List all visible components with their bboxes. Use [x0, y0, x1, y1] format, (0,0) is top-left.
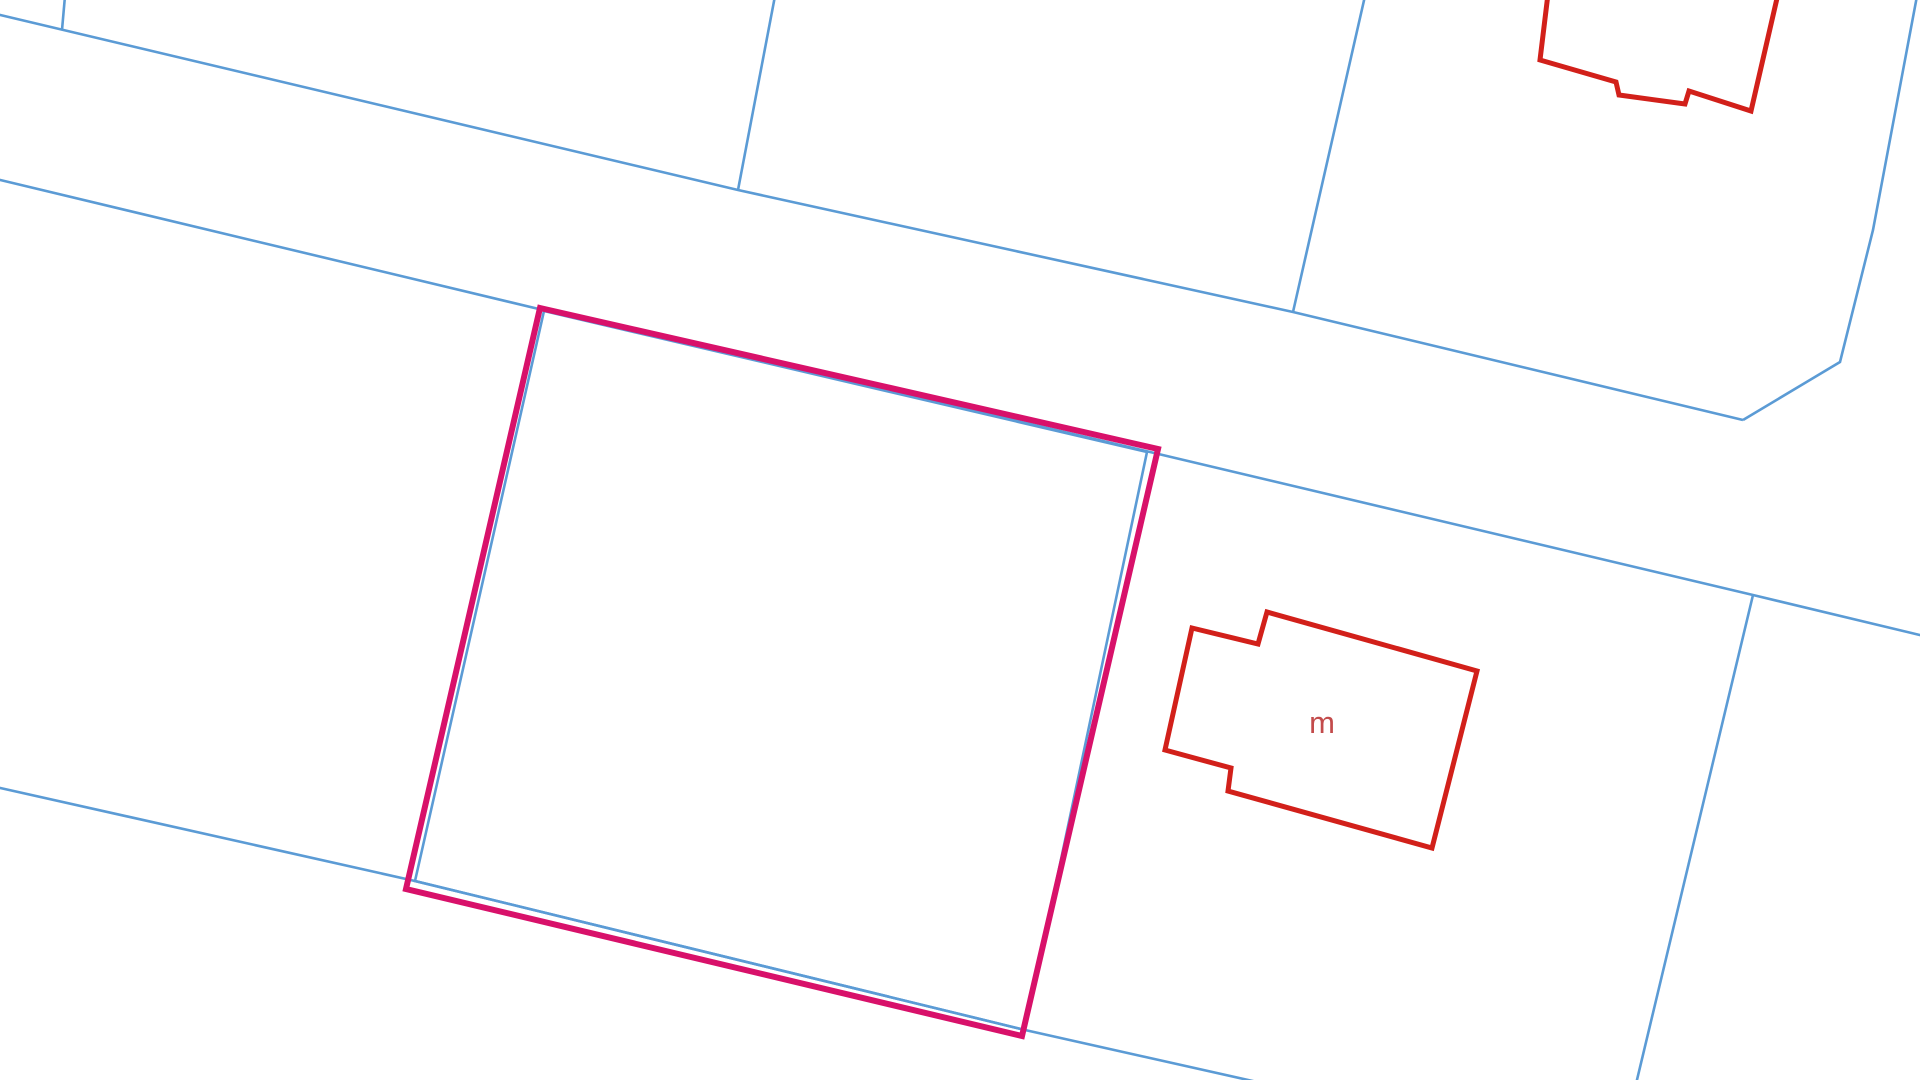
parcel-boundary-block-divider-1	[738, 0, 775, 190]
map-viewport: m	[0, 0, 1920, 1080]
building-m-label: m	[1309, 705, 1335, 740]
parcel-boundary-top-left-stub	[62, 0, 65, 30]
parcel-boundaries-layer	[0, 0, 1920, 1080]
selected-parcel-layer	[406, 308, 1158, 1036]
map-canvas[interactable]: m	[0, 0, 1920, 1080]
parcel-boundary-right-parcel-divider	[1636, 595, 1753, 1080]
parcel-boundary-block-divider-2	[1293, 0, 1365, 312]
buildings-layer: m	[1165, 0, 1778, 848]
building-north-outline[interactable]	[1540, 0, 1778, 111]
parcel-boundary-right-block-edge	[1743, 0, 1917, 420]
parcel-boundary-road-top-edge	[0, 14, 1743, 420]
